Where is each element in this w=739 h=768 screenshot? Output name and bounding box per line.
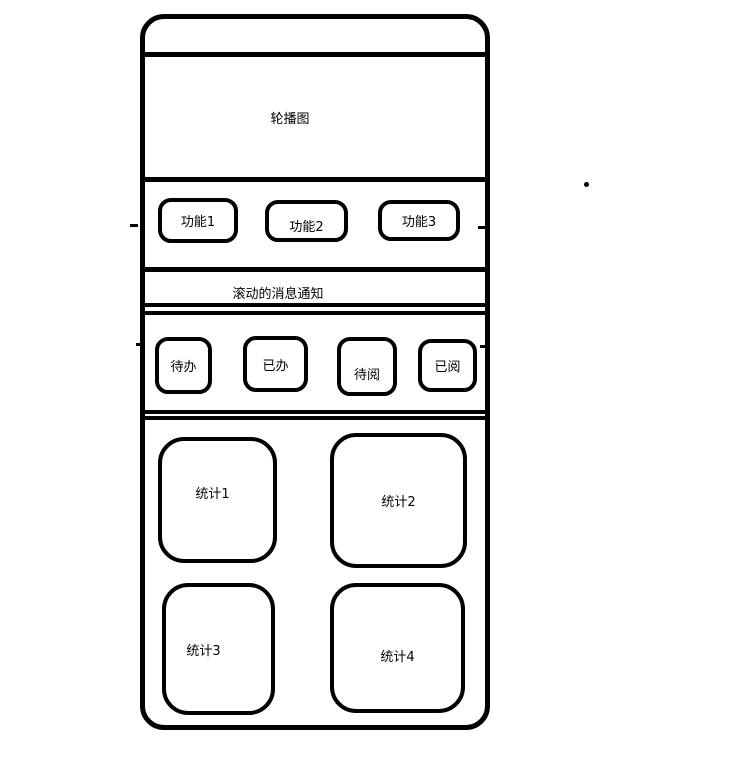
stat-card-1-label: 统计1 xyxy=(195,483,229,502)
stat-card-2-label: 统计2 xyxy=(381,491,415,510)
done-button-label: 已办 xyxy=(262,355,288,374)
right-anchor-tick-functions xyxy=(478,226,485,229)
function-button-1-label: 功能1 xyxy=(181,211,215,230)
stat-card-1[interactable]: 统计1 xyxy=(158,437,277,563)
carousel-bottom-divider xyxy=(145,177,485,182)
stat-card-2[interactable]: 统计2 xyxy=(330,433,467,568)
right-anchor-tick-tasks xyxy=(480,345,486,348)
wireframe-canvas: 轮播图 功能1 功能2 功能3 滚动的消息通知 待办 已办 待阅 xyxy=(0,0,739,768)
read-button[interactable]: 已阅 xyxy=(418,339,477,392)
notice-bottom-divider xyxy=(145,303,485,307)
status-bar-area xyxy=(145,19,485,52)
function-button-2[interactable]: 功能2 xyxy=(265,200,348,242)
left-anchor-tick-tasks xyxy=(136,343,142,346)
todo-button-label: 待办 xyxy=(170,356,196,375)
task-shortcuts-section: 待办 已办 待阅 已阅 xyxy=(145,311,485,414)
to-read-button-label: 待阅 xyxy=(354,364,380,383)
carousel-label: 轮播图 xyxy=(270,108,309,127)
stats-top-divider xyxy=(145,416,485,420)
function-button-3[interactable]: 功能3 xyxy=(378,200,460,241)
scrolling-notice-label: 滚动的消息通知 xyxy=(232,283,323,302)
phone-frame: 轮播图 功能1 功能2 功能3 滚动的消息通知 待办 已办 待阅 xyxy=(140,14,490,730)
stray-dot-mark xyxy=(584,182,589,187)
read-button-label: 已阅 xyxy=(434,356,460,375)
stat-card-4[interactable]: 统计4 xyxy=(330,583,465,713)
carousel-banner[interactable]: 轮播图 xyxy=(145,57,485,177)
left-anchor-tick-functions xyxy=(130,224,138,227)
stat-card-3[interactable]: 统计3 xyxy=(162,583,275,715)
scrolling-notice-bar[interactable]: 滚动的消息通知 xyxy=(145,272,485,303)
stat-card-3-label: 统计3 xyxy=(186,640,220,659)
function-button-1[interactable]: 功能1 xyxy=(158,198,238,243)
todo-button[interactable]: 待办 xyxy=(155,337,212,394)
function-button-2-label: 功能2 xyxy=(289,216,323,235)
done-button[interactable]: 已办 xyxy=(243,336,308,392)
function-button-3-label: 功能3 xyxy=(402,211,436,230)
stat-card-4-label: 统计4 xyxy=(380,646,414,665)
to-read-button[interactable]: 待阅 xyxy=(337,337,397,396)
